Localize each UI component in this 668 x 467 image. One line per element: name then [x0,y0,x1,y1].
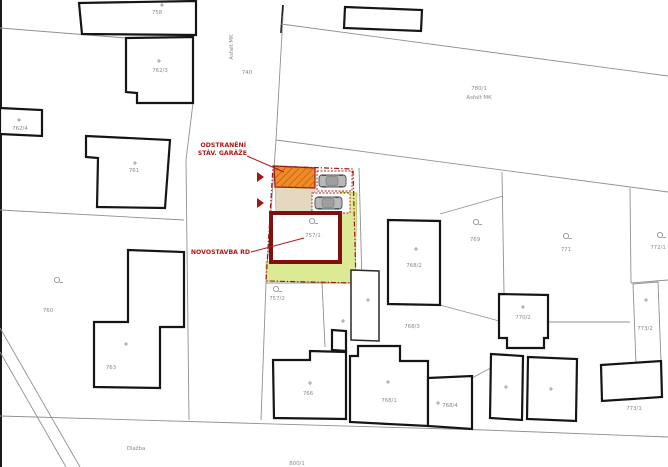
parcel-label: 773/1 [626,406,642,412]
car-icon [319,174,346,187]
parcel-line [0,210,184,220]
driveway-line [0,328,80,467]
road-surface-label: Dlažba [127,445,146,452]
parcel-circle-icon [273,286,282,291]
driveway-line [0,352,66,467]
car-wheel [339,186,343,188]
entrance-arrow-icon [257,198,264,208]
parcel-line [359,168,362,283]
parcel-label: 763 [106,365,116,371]
car-wheel [335,208,339,210]
road-west-left-edge [186,103,193,420]
parcel-label: 766 [303,391,314,397]
building-758 [79,1,196,35]
parcel-label: 768/1 [381,398,397,404]
plus-mark-icon [341,319,345,323]
building-small-center [332,330,346,351]
project-site [257,166,357,283]
car-wheel [322,186,326,188]
building-770-2 [499,294,548,348]
building-strip-center [351,270,379,341]
parcel-label: 761 [129,168,139,174]
entrance-arrow-icon [257,172,264,182]
building-766 [273,351,346,419]
road-north-upper-edge [281,24,668,76]
road-parcel-label: 740 [242,70,253,76]
parcel-circle-icon [657,232,666,237]
car-roof [326,177,338,186]
garage-removal-label: ODSTRANĚNÍ [200,140,246,149]
parcel-line [630,188,631,283]
parcel-label: 757/1 [305,233,321,239]
parcel-label: 760 [43,308,54,314]
garage-leader-line [247,156,284,172]
parcel-label: 762/4 [12,126,28,132]
parcel-label: 768/4 [442,403,458,409]
garage-hatch-overlay [274,166,315,188]
parcel-label: 771 [561,247,571,253]
parcel-line [502,172,504,293]
parcel-label: 768/2 [406,263,422,269]
garage-removal-label: STÁV. GARÁŽE [198,148,247,157]
site-plan-page: 758 762/3 762/4 761 760 763 757/1 757/2 … [0,0,668,467]
road-parcel-label: 800/1 [289,461,305,467]
building-773-1 [601,361,662,401]
car-wheel [339,174,343,176]
parcel-circle-icon [563,233,572,238]
building-north [344,7,422,31]
parcel-circle-icon [473,219,482,224]
parcel-label: 757/2 [269,296,285,302]
parcel-strip-773-2 [633,282,661,364]
parcel-label: 770/2 [515,315,531,321]
parcel-label: 758 [152,10,163,16]
parcel-label: 769 [470,237,481,243]
car-wheel [318,208,322,210]
building-768-1 [350,346,428,426]
cadastral-site-plan: 758 762/3 762/4 761 760 763 757/1 757/2 … [0,0,668,467]
yard-area [275,187,315,213]
parcel-label: 762/3 [152,68,168,74]
car-icon [315,196,342,209]
parcel-label: 772/1 [650,245,666,251]
new-house-label: NOVOSTAVBA RD [191,249,250,256]
parcel-line [440,196,503,214]
car-wheel [335,196,339,198]
parcel-label: 773/2 [637,326,653,332]
plus-mark-icon [644,298,648,302]
road-surface-label: Asfalt MK [466,95,492,101]
car-wheel [318,196,322,198]
parcel-line [322,283,325,347]
road-parcel-label: 780/1 [471,86,487,92]
car-roof [322,199,334,208]
parcel-circle-icon [54,277,63,282]
parcel-line [440,305,503,322]
road-surface-label: Asfalt MK [229,34,235,60]
parcel-label: 768/3 [404,324,420,330]
car-wheel [322,174,326,176]
